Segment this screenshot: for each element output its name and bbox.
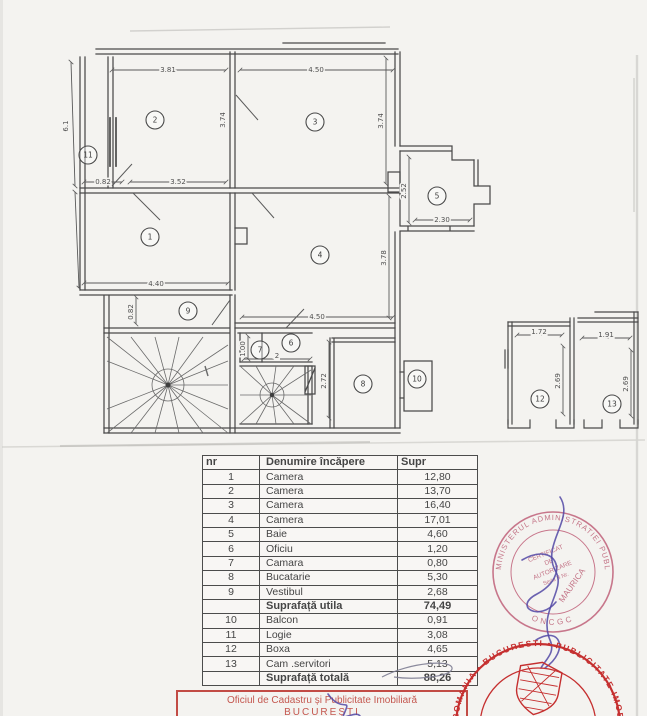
office-name-line: Oficiul de Cadastru și Publicitate Imobi…	[178, 695, 466, 706]
cell-nr	[203, 599, 260, 613]
table-row: 5Baie4,60	[203, 527, 478, 541]
room-area-table: nr Denumire încăpere Supr 1Camera12,80 2…	[202, 455, 478, 686]
table-row: 9Vestibul2,68	[203, 585, 478, 599]
cell-supr: 1,20	[398, 542, 478, 556]
column-header-supr: Supr	[398, 456, 478, 470]
room-number-badge-12: 12	[531, 390, 549, 408]
table-row: 4Camera17,01	[203, 513, 478, 527]
cell-supr: 12,80	[398, 470, 478, 484]
svg-text:4: 4	[318, 251, 323, 260]
cell-nr: 12	[203, 643, 260, 657]
room-number-badge-9: 9	[179, 302, 197, 320]
svg-text:12: 12	[535, 395, 545, 404]
cell-supr: 13,70	[398, 484, 478, 498]
spiral-staircase-small	[240, 366, 311, 424]
cell-supr: 4,65	[398, 643, 478, 657]
room-number-badge-5: 5	[428, 187, 446, 205]
scanned-cadastral-document: 3.81 4.50 3.74 3.74 3.52 0.82 6.1 2.52 2…	[0, 0, 647, 716]
cell-nr: 11	[203, 628, 260, 642]
room-number-badge-6: 6	[282, 334, 300, 352]
cell-nr: 2	[203, 484, 260, 498]
dim-label: 2.69	[554, 373, 562, 389]
table-header-row: nr Denumire încăpere Supr	[203, 456, 478, 470]
column-header-name: Denumire încăpere	[260, 456, 398, 470]
dim-label: 2.52	[400, 183, 408, 199]
svg-text:3: 3	[313, 118, 318, 127]
cell-nr: 7	[203, 556, 260, 570]
cell-name: Camera	[260, 484, 398, 498]
dim-label: 2.69	[622, 376, 630, 392]
room-number-badge-3: 3	[306, 113, 324, 131]
cell-name: Camera	[260, 470, 398, 484]
room-number-badge-2: 2	[146, 111, 164, 129]
cell-name: Logie	[260, 628, 398, 642]
room-number-badge-8: 8	[354, 375, 372, 393]
cell-supr: 0,80	[398, 556, 478, 570]
table-row: 12Boxa4,65	[203, 643, 478, 657]
room-number-badge-10: 10	[408, 370, 426, 388]
dim-label: 3.81	[160, 66, 176, 74]
cell-supr: 17,01	[398, 513, 478, 527]
table-row: 11Logie3,08	[203, 628, 478, 642]
cell-supr: 0,91	[398, 614, 478, 628]
table-row-suprafata-utila: Suprafață utila74,49	[203, 599, 478, 613]
cadastre-office-stamp-box: Oficiul de Cadastru și Publicitate Imobi…	[176, 690, 468, 716]
dim-label: 1.91	[598, 331, 614, 339]
cell-name: Balcon	[260, 614, 398, 628]
table-row: 1Camera12,80	[203, 470, 478, 484]
table-row: 8Bucatarie5,30	[203, 571, 478, 585]
dim-label: 4.40	[148, 280, 164, 288]
cell-nr: 1	[203, 470, 260, 484]
room-number-badge-13: 13	[603, 395, 621, 413]
dim-label: 1.72	[531, 328, 547, 336]
cell-supr: 16,40	[398, 499, 478, 513]
svg-text:9: 9	[186, 307, 191, 316]
svg-text:11: 11	[83, 151, 93, 160]
dim-label: 4.50	[309, 313, 325, 321]
cell-name: Bucatarie	[260, 571, 398, 585]
room-number-badge-7: 7	[251, 341, 269, 359]
dim-label: 2.72	[320, 373, 328, 389]
room-number-badge-1: 1	[141, 228, 159, 246]
table-row: 7Camara0,80	[203, 556, 478, 570]
cell-name: Suprafață totală	[260, 671, 398, 685]
svg-text:7: 7	[258, 346, 263, 355]
svg-text:8: 8	[361, 380, 366, 389]
cell-supr: 2,68	[398, 585, 478, 599]
cell-nr: 8	[203, 571, 260, 585]
cell-name: Boxa	[260, 643, 398, 657]
cell-name: Camera	[260, 513, 398, 527]
svg-text:1: 1	[148, 233, 153, 242]
svg-text:10: 10	[412, 375, 422, 384]
cell-nr: 4	[203, 513, 260, 527]
cell-name: Camara	[260, 556, 398, 570]
cell-nr: 6	[203, 542, 260, 556]
cell-supr: 4,60	[398, 527, 478, 541]
column-header-nr: nr	[203, 456, 260, 470]
dim-label: 3.74	[219, 112, 227, 128]
table-row: 2Camera13,70	[203, 484, 478, 498]
cell-nr	[203, 671, 260, 685]
cell-nr: 5	[203, 527, 260, 541]
svg-text:2: 2	[153, 116, 158, 125]
cell-supr: 5,13	[398, 657, 478, 671]
cell-supr: 74,49	[398, 599, 478, 613]
office-city-line: BUCUREȘTI	[178, 707, 466, 716]
dim-label: 6.1	[62, 120, 70, 131]
dim-label: 3.52	[170, 178, 186, 186]
table-row-suprafata-totala: Suprafață totală88,26	[203, 671, 478, 685]
cell-name: Suprafață utila	[260, 599, 398, 613]
cell-name: Cam .servitori	[260, 657, 398, 671]
dim-label: 2.30	[434, 216, 450, 224]
dim-label: 4.50	[308, 66, 324, 74]
cell-name: Baie	[260, 527, 398, 541]
svg-text:13: 13	[607, 400, 617, 409]
svg-text:5: 5	[435, 192, 440, 201]
cell-supr: 5,30	[398, 571, 478, 585]
room-number-badge-4: 4	[311, 246, 329, 264]
cell-nr: 3	[203, 499, 260, 513]
cell-nr: 10	[203, 614, 260, 628]
dim-label: 0.82	[127, 304, 135, 320]
table-row: 3Camera16,40	[203, 499, 478, 513]
spiral-staircase-large	[107, 337, 228, 433]
cell-nr: 13	[203, 657, 260, 671]
dim-label: 2	[275, 352, 279, 360]
dim-label: 3.74	[377, 113, 385, 129]
table-row: 6Oficiu1,20	[203, 542, 478, 556]
cell-nr: 9	[203, 585, 260, 599]
cell-supr: 88,26	[398, 671, 478, 685]
dim-label: 0.82	[95, 178, 111, 186]
dim-label: 1.00	[239, 341, 247, 357]
cell-supr: 3,08	[398, 628, 478, 642]
door-swings	[112, 95, 304, 328]
svg-text:6: 6	[289, 339, 294, 348]
table-row: 10Balcon0,91	[203, 614, 478, 628]
dim-label: 3.78	[380, 250, 388, 266]
room-number-badge-11: 11	[79, 146, 97, 164]
table-row: 13Cam .servitori5,13	[203, 657, 478, 671]
cell-name: Camera	[260, 499, 398, 513]
cell-name: Oficiu	[260, 542, 398, 556]
cell-name: Vestibul	[260, 585, 398, 599]
room-number-badges: 1 2 3 4 5 6 7 8 9 10 11 12 13	[79, 111, 621, 413]
